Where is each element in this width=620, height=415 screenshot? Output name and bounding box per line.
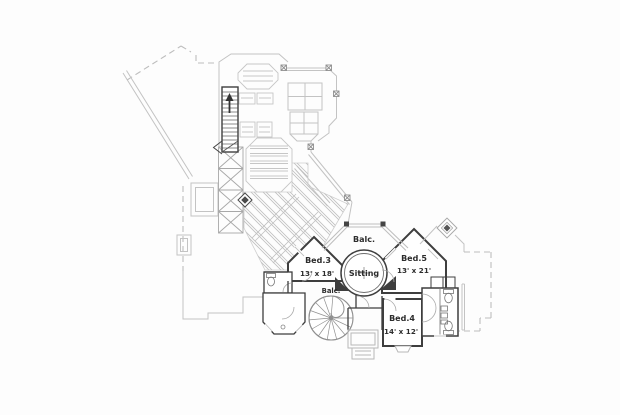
dashed-roof-outline-right	[459, 252, 491, 331]
room-label-balcony-upper: Balc.	[353, 235, 375, 244]
door-swing	[357, 296, 369, 308]
x-brace-pillars	[219, 147, 244, 233]
balcony-post	[344, 222, 349, 227]
room-label-bed-3: Bed.3	[305, 256, 331, 265]
balcony-post	[381, 222, 386, 227]
floor-plan-page: Balc. Bed.3 13' x 18' Sitting Bed.5 13' …	[0, 0, 620, 415]
window-bay	[395, 346, 411, 352]
staircase	[214, 87, 239, 154]
turret-room	[263, 293, 305, 334]
room-label-balcony-lower: Balc.	[322, 287, 341, 295]
floor-plan-drawing: Balc. Bed.3 13' x 18' Sitting Bed.5 13' …	[0, 0, 620, 415]
rear-porch	[348, 330, 378, 359]
spiral-staircase	[309, 296, 353, 340]
right-bath	[422, 288, 458, 336]
room-dims-bed-5: 13' x 21'	[397, 266, 431, 275]
room-label-sitting: Sitting	[349, 269, 380, 278]
terrace-railing	[284, 68, 352, 224]
railing-posts	[281, 65, 350, 201]
terrace-furniture	[238, 64, 292, 192]
terrace-glass-panels	[288, 83, 322, 141]
center-hall	[348, 295, 382, 330]
room-bed-4	[383, 297, 422, 353]
dashed-roof-outline-left	[127, 46, 216, 271]
room-label-bed-4: Bed.4	[389, 314, 415, 323]
diamond-marker	[238, 193, 252, 207]
lower-level-wall-left	[123, 71, 263, 320]
room-label-bed-5: Bed.5	[401, 254, 427, 263]
side-balcony-right	[462, 284, 465, 330]
room-dims-bed-4: 14' x 12'	[384, 327, 418, 336]
room-dims-bed-3: 13' x 18'	[300, 269, 334, 278]
